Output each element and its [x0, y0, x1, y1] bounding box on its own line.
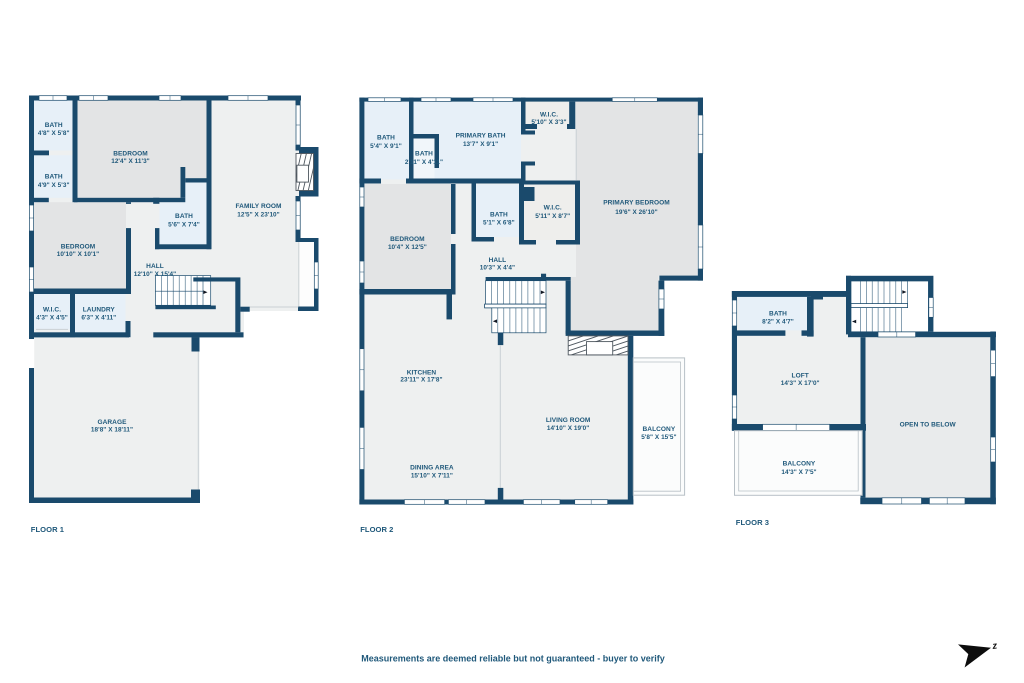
- svg-text:BATH: BATH: [45, 122, 63, 129]
- svg-text:14'3" X 7'5": 14'3" X 7'5": [781, 469, 816, 476]
- svg-text:14'10" X 19'0": 14'10" X 19'0": [547, 425, 590, 432]
- svg-text:OPEN TO BELOW: OPEN TO BELOW: [900, 421, 957, 428]
- svg-text:LIVING ROOM: LIVING ROOM: [546, 417, 591, 424]
- svg-text:LOFT: LOFT: [792, 373, 809, 380]
- svg-text:10'3" X 4'4": 10'3" X 4'4": [480, 264, 515, 271]
- svg-text:12'5" X 23'10": 12'5" X 23'10": [237, 212, 280, 219]
- svg-text:FAMILY ROOM: FAMILY ROOM: [235, 203, 282, 210]
- svg-text:5'1" X 6'8": 5'1" X 6'8": [483, 219, 515, 226]
- svg-text:HALL: HALL: [489, 257, 507, 264]
- svg-text:13'7" X 9'1": 13'7" X 9'1": [463, 141, 498, 148]
- svg-text:12'4" X 11'3": 12'4" X 11'3": [111, 158, 150, 165]
- svg-text:4'9" X 5'3": 4'9" X 5'3": [38, 182, 70, 189]
- svg-text:5'8" X 15'5": 5'8" X 15'5": [641, 434, 676, 441]
- svg-text:Measurements are deemed reliab: Measurements are deemed reliable but not…: [361, 654, 665, 664]
- svg-text:8'2" X 4'7": 8'2" X 4'7": [762, 319, 794, 326]
- svg-text:BATH: BATH: [490, 211, 508, 218]
- svg-text:FLOOR 3: FLOOR 3: [736, 518, 769, 527]
- svg-text:15'10" X 7'11": 15'10" X 7'11": [411, 473, 453, 480]
- svg-text:FLOOR 1: FLOOR 1: [31, 525, 65, 534]
- svg-text:W.I.C.: W.I.C.: [540, 111, 558, 118]
- svg-text:BALCONY: BALCONY: [643, 426, 676, 433]
- svg-text:19'6" X 26'10": 19'6" X 26'10": [615, 209, 658, 216]
- svg-text:18'8" X 18'11": 18'8" X 18'11": [91, 427, 133, 434]
- svg-text:4'3" X 4'5": 4'3" X 4'5": [36, 314, 68, 321]
- svg-text:BEDROOM: BEDROOM: [61, 244, 96, 251]
- svg-text:FLOOR 2: FLOOR 2: [360, 525, 393, 534]
- svg-text:10'10" X 10'1": 10'10" X 10'1": [57, 251, 100, 258]
- svg-text:BATH: BATH: [769, 311, 787, 318]
- svg-text:BEDROOM: BEDROOM: [390, 236, 425, 243]
- svg-text:23'11" X 17'8": 23'11" X 17'8": [400, 377, 442, 384]
- svg-text:PRIMARY BEDROOM: PRIMARY BEDROOM: [603, 200, 670, 207]
- svg-text:BATH: BATH: [415, 151, 433, 158]
- svg-text:BALCONY: BALCONY: [783, 461, 816, 468]
- svg-text:5'10" X 3'3": 5'10" X 3'3": [531, 119, 566, 126]
- svg-text:5'11" X 8'7": 5'11" X 8'7": [535, 213, 570, 220]
- svg-text:LAUNDRY: LAUNDRY: [83, 307, 116, 314]
- svg-text:GARAGE: GARAGE: [97, 419, 127, 426]
- svg-text:BATH: BATH: [377, 135, 395, 142]
- svg-text:6'3" X 4'11": 6'3" X 4'11": [81, 314, 116, 321]
- svg-text:KITCHEN: KITCHEN: [407, 370, 437, 377]
- svg-text:PRIMARY BATH: PRIMARY BATH: [456, 133, 506, 140]
- svg-text:10'4" X 12'5": 10'4" X 12'5": [388, 244, 427, 251]
- svg-text:BATH: BATH: [175, 213, 193, 220]
- svg-text:5'6" X 7'4": 5'6" X 7'4": [168, 222, 200, 229]
- svg-text:DINING AREA: DINING AREA: [410, 465, 454, 472]
- svg-text:BATH: BATH: [45, 174, 63, 181]
- svg-text:HALL: HALL: [146, 263, 164, 270]
- svg-text:W.I.C.: W.I.C.: [544, 205, 562, 212]
- svg-text:14'3" X 17'0": 14'3" X 17'0": [781, 380, 820, 387]
- svg-text:2'11" X 4'11": 2'11" X 4'11": [405, 159, 443, 166]
- svg-text:12'10" X 15'4": 12'10" X 15'4": [134, 271, 177, 278]
- svg-text:BEDROOM: BEDROOM: [113, 151, 148, 158]
- svg-text:4'8" X 5'8": 4'8" X 5'8": [38, 130, 70, 137]
- svg-text:5'4" X 9'1": 5'4" X 9'1": [370, 143, 402, 150]
- svg-text:W.I.C.: W.I.C.: [43, 307, 61, 314]
